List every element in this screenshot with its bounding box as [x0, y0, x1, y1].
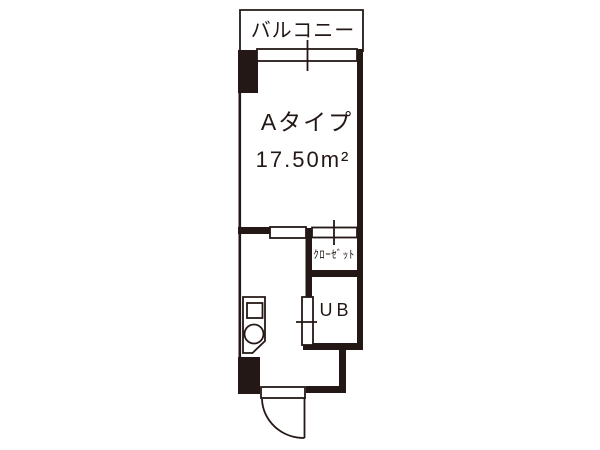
- room-sliding-door: [270, 227, 306, 238]
- wall-entry-bottom: [306, 386, 346, 393]
- kitchen-burner: [245, 325, 264, 344]
- wall-pillar-bottom-left: [238, 357, 260, 394]
- bath-door: [302, 297, 313, 345]
- balcony-label: バルコニー: [251, 20, 356, 42]
- closet-label: ｸﾛｰｾﾞｯﾄ: [313, 248, 355, 261]
- wall-room-divider-stub: [238, 227, 271, 234]
- unit-type-label: Aタイプ: [261, 109, 353, 135]
- unit-bath-label: UB: [319, 300, 352, 320]
- wall-pillar-top-left: [238, 50, 258, 93]
- entrance-door-panel: [261, 387, 305, 398]
- kitchen-sink: [247, 303, 263, 318]
- entrance-door-swing-arc: [262, 399, 305, 438]
- floorplan-drawing: バルコニー Aタイプ 17.50m² ｸﾛｰｾﾞｯﾄ UB: [0, 0, 600, 450]
- unit-area-label: 17.50m²: [256, 147, 351, 172]
- wall-left: [239, 90, 242, 360]
- wall-closet-bottom: [306, 270, 364, 277]
- wall-right: [357, 49, 363, 350]
- floorplan-canvas: バルコニー Aタイプ 17.50m² ｸﾛｰｾﾞｯﾄ UB: [0, 0, 600, 450]
